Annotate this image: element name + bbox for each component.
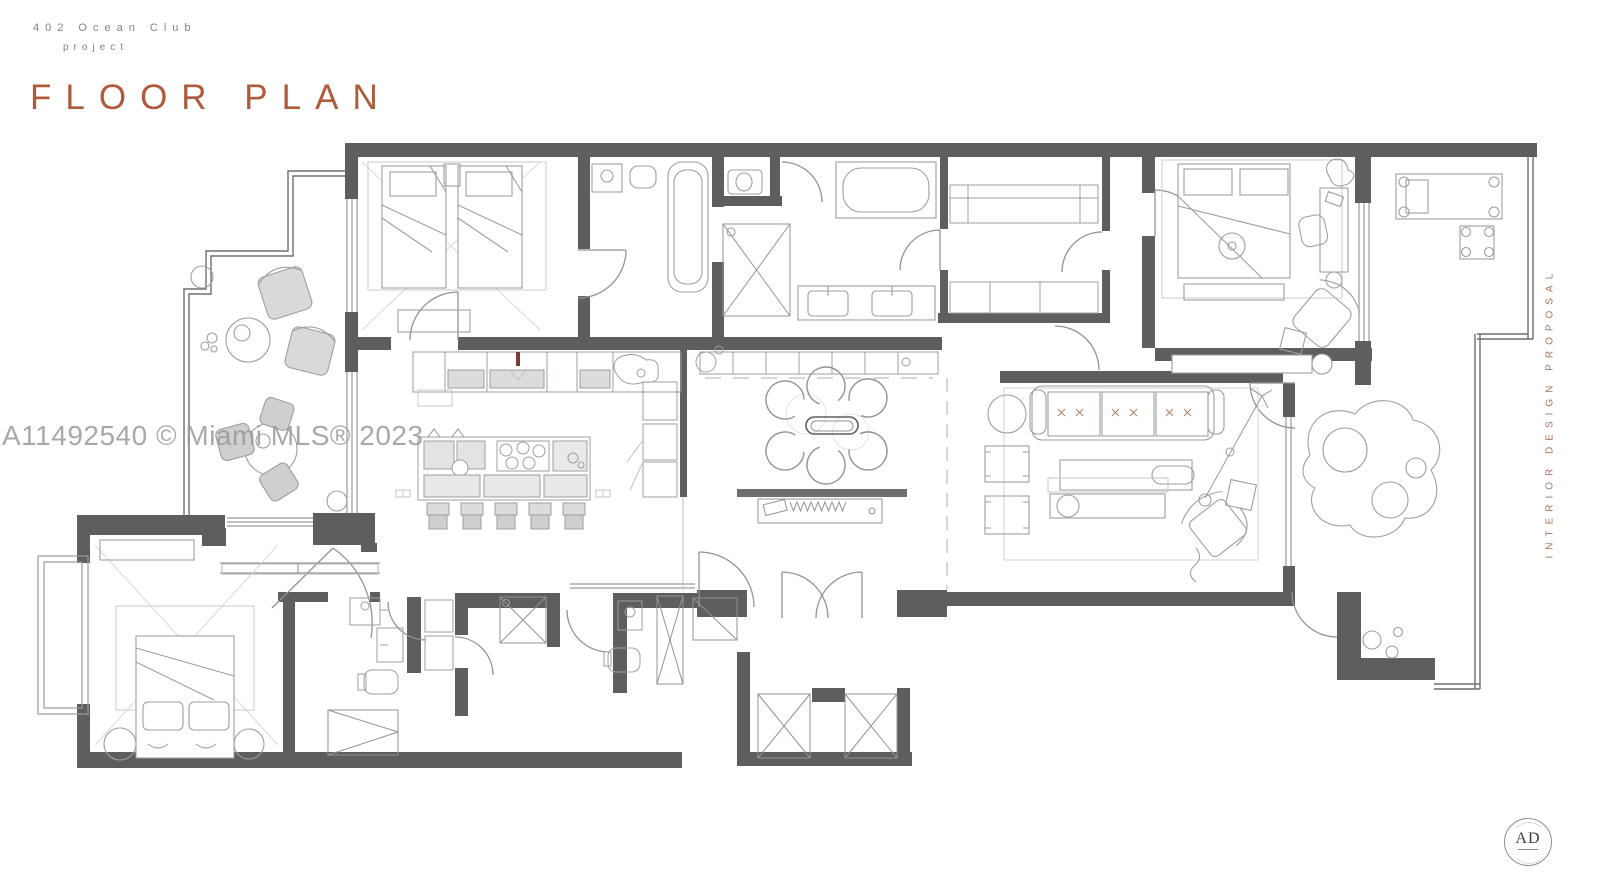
dining-console (737, 489, 907, 523)
bathroom-3 (350, 598, 453, 694)
master-bath (727, 162, 936, 320)
designer-logo: AD (1504, 818, 1552, 866)
logo-monogram: AD (1504, 830, 1552, 848)
living-room (985, 386, 1272, 582)
side-label: INTERIOR DESIGN PROPOSAL (1545, 329, 1558, 559)
master-bedroom (1162, 159, 1366, 374)
bath-1 (592, 162, 708, 292)
kitchen (396, 352, 681, 529)
terrace-left-lounge (191, 262, 347, 511)
twin-bedroom (362, 162, 546, 332)
closet-room (950, 185, 1098, 313)
dining-area (766, 367, 887, 484)
floor-plan-page: 402 Ocean Club project FLOOR PLAN A11492… (0, 0, 1600, 891)
kitchen-stools (427, 503, 585, 529)
mls-watermark: A11492540 © Miami MLS® 2023 (2, 420, 424, 452)
logo-underline (1518, 849, 1538, 850)
dashed-guides (683, 378, 947, 590)
sofa-pillow-marks (1058, 409, 1191, 416)
terrace-right (1303, 174, 1502, 658)
